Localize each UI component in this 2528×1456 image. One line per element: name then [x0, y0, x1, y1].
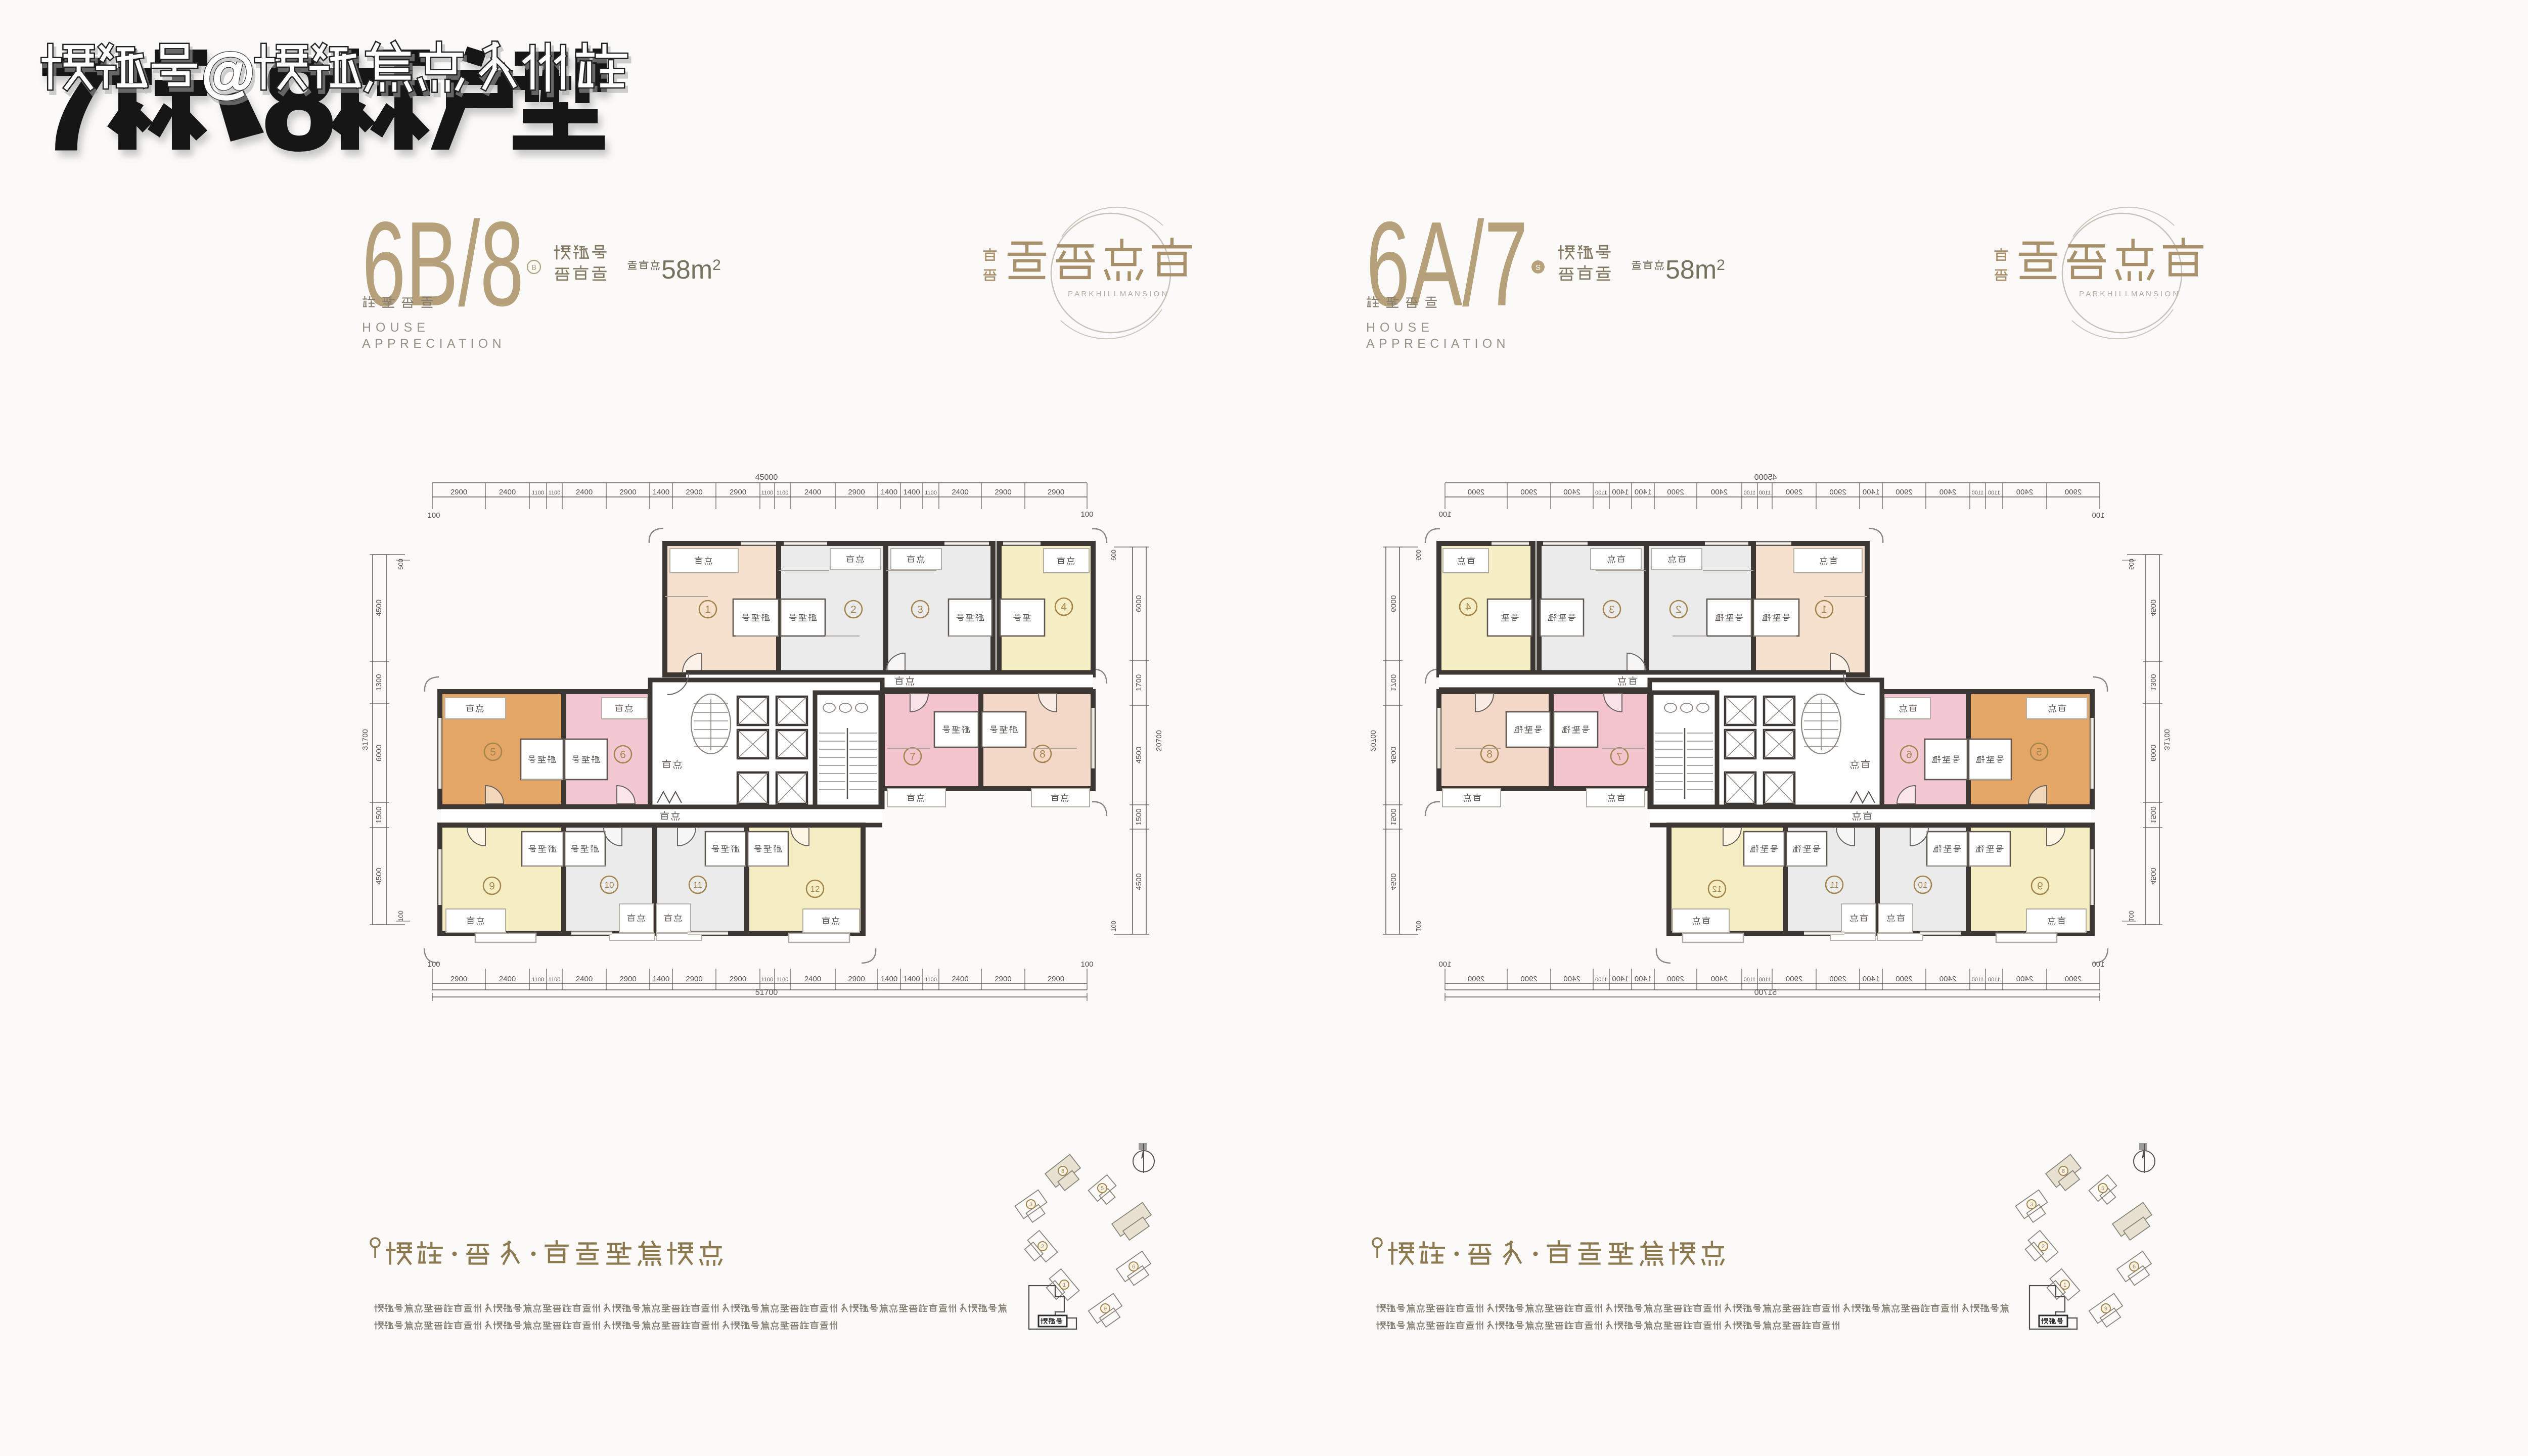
svg-text:5: 5: [1101, 1186, 1104, 1192]
svg-text:6: 6: [1132, 1264, 1135, 1270]
svg-text:1: 1: [2063, 1282, 2066, 1288]
svg-text:P A R K H I L L M A N S I O N: P A R K H I L L M A N S I O N: [2079, 290, 2178, 298]
svg-text:58m2: 58m2: [661, 255, 721, 285]
svg-text:1: 1: [1063, 1282, 1066, 1288]
svg-text:HOUSE: HOUSE: [1366, 321, 1434, 335]
svg-text:APPRECIATION: APPRECIATION: [362, 337, 506, 351]
svg-text:S: S: [1536, 263, 1541, 272]
svg-text:8: 8: [2062, 1168, 2065, 1174]
svg-text:B: B: [531, 263, 536, 272]
svg-text:6: 6: [2133, 1264, 2136, 1270]
svg-text:5: 5: [2101, 1186, 2104, 1192]
svg-text:HOUSE: HOUSE: [362, 321, 430, 335]
svg-text:6B/8: 6B/8: [362, 197, 524, 331]
svg-text:9: 9: [1104, 1306, 1107, 1312]
svg-text:9: 9: [2104, 1306, 2107, 1312]
svg-text:@: @: [201, 42, 256, 104]
svg-text:2: 2: [2042, 1244, 2045, 1250]
svg-text:3: 3: [2030, 1202, 2033, 1208]
svg-text:APPRECIATION: APPRECIATION: [1366, 337, 1510, 351]
svg-text:P A R K H I L L M A N S I O N: P A R K H I L L M A N S I O N: [1068, 290, 1167, 298]
svg-text:58m2: 58m2: [1665, 255, 1725, 285]
svg-text:2: 2: [1041, 1244, 1044, 1250]
svg-text:8: 8: [1061, 1168, 1064, 1174]
svg-text:6A/7: 6A/7: [1366, 197, 1528, 331]
svg-text:3: 3: [1029, 1202, 1032, 1208]
